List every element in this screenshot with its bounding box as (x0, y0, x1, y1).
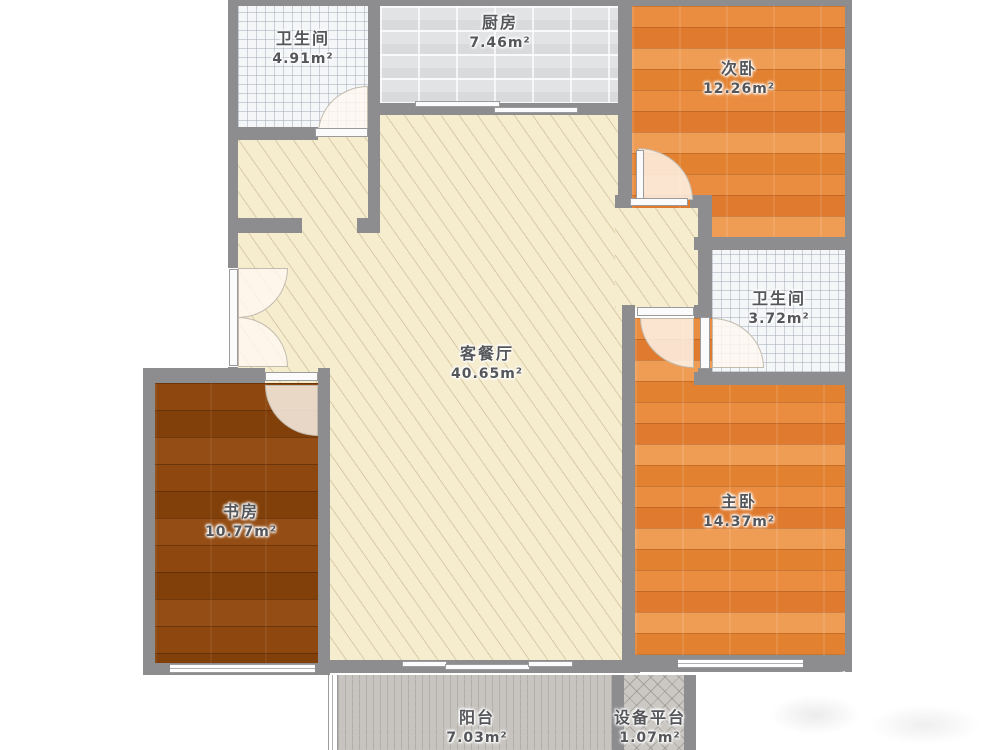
wall-study-top-left (143, 368, 265, 383)
room-area: 7.46m² (469, 34, 530, 53)
window-study (170, 664, 315, 673)
wall-bathroom-1-right (368, 0, 380, 233)
wall-study-right (318, 383, 330, 663)
door-leaf-bathroom-2 (700, 317, 710, 369)
room-label-kitchen: 厨房 7.46m² (469, 12, 530, 53)
room-label-balcony: 阳台 7.03m² (446, 707, 507, 748)
room-name: 阳台 (446, 707, 507, 729)
wall-entry-stub-left (228, 218, 302, 233)
room-area: 3.72m² (748, 310, 809, 329)
window-balcony-left-rail (328, 675, 338, 750)
door-leaf-master-bedroom (637, 307, 694, 316)
room-name: 书房 (205, 501, 277, 523)
wall-kitchen-bedroom2-divider (618, 0, 632, 208)
room-name: 卫生间 (748, 288, 809, 310)
room-label-study: 书房 10.77m² (205, 501, 277, 542)
door-leaf-study (265, 372, 318, 381)
sliding-door-balcony-panel-3 (528, 661, 573, 667)
room-area: 7.03m² (446, 729, 507, 748)
door-leaf-bedroom-2 (636, 150, 644, 200)
room-name: 厨房 (469, 12, 530, 34)
window-master-bedroom (678, 659, 803, 668)
sliding-door-balcony-panel-2 (445, 664, 530, 670)
room-label-living-dining: 客餐厅 40.65m² (451, 343, 523, 384)
wall-study-left (143, 368, 155, 675)
room-name: 次卧 (703, 58, 775, 80)
sliding-door-kitchen-panel-1 (415, 101, 500, 107)
room-label-bathroom-1: 卫生间 4.91m² (272, 28, 333, 69)
watermark (760, 685, 990, 745)
room-name: 客餐厅 (451, 343, 523, 365)
room-label-bathroom-2: 卫生间 3.72m² (748, 288, 809, 329)
room-area: 4.91m² (272, 50, 333, 69)
door-leaf-bathroom-1 (315, 128, 368, 137)
sliding-door-balcony-panel-1 (402, 661, 447, 667)
room-label-equipment-platform: 设备平台 1.07m² (614, 707, 686, 748)
room-area: 1.07m² (614, 729, 686, 748)
floor-corridor (615, 208, 698, 308)
room-name: 卫生间 (272, 28, 333, 50)
wall-top-exterior (228, 0, 852, 6)
wall-study-top-right (318, 368, 330, 383)
sliding-door-kitchen-panel-2 (494, 107, 578, 113)
door-opening-bedroom-2 (630, 198, 688, 206)
room-area: 10.77m² (205, 523, 277, 542)
room-area: 14.37m² (703, 513, 775, 532)
room-name: 设备平台 (614, 707, 686, 729)
room-label-bedroom-2: 次卧 12.26m² (703, 58, 775, 99)
door-leaf-entry (229, 269, 238, 366)
floor-plan: 卫生间 4.91m² 厨房 7.46m² 次卧 12.26m² 卫生间 3.72… (0, 0, 1000, 750)
room-area: 12.26m² (703, 80, 775, 99)
wall-bathroom-2-top (694, 237, 852, 250)
room-name: 主卧 (703, 491, 775, 513)
wall-bathroom-2-left-upper (698, 195, 712, 315)
wall-master-left (622, 305, 635, 672)
wall-bedroom-2-bottom-left (615, 195, 627, 208)
room-area: 40.65m² (451, 365, 523, 384)
room-label-master-bedroom: 主卧 14.37m² (703, 491, 775, 532)
wall-bathroom-1-bottom (228, 127, 318, 140)
wall-right-exterior (845, 0, 852, 672)
wall-bathroom-2-bottom (694, 372, 852, 385)
